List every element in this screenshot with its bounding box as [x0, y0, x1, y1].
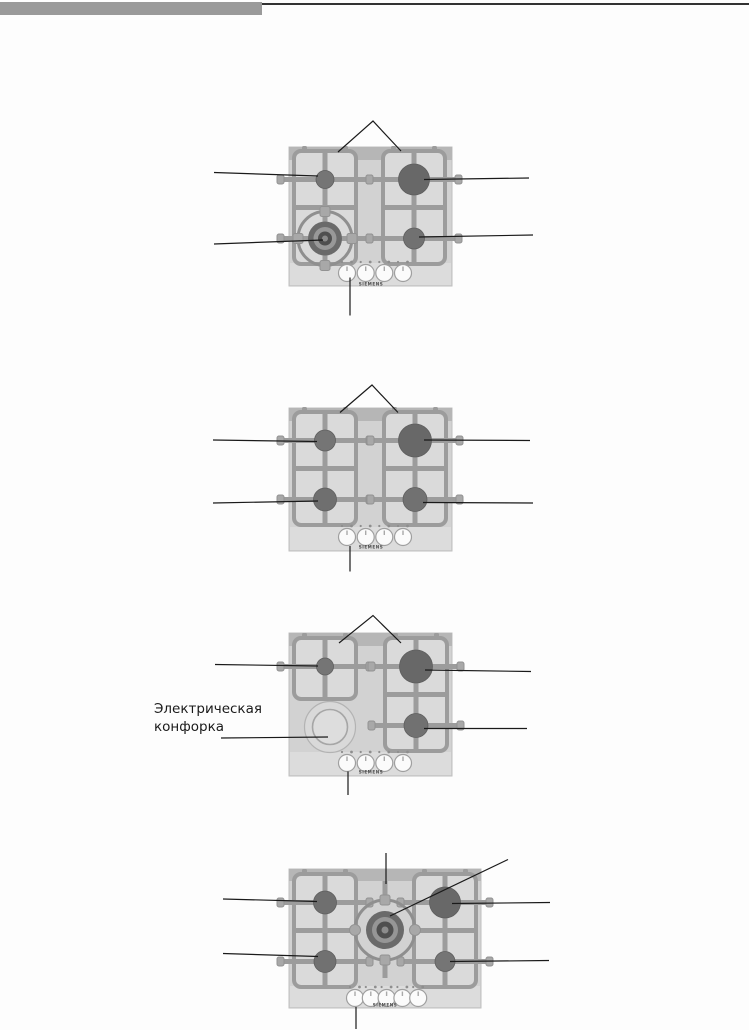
- front-right-burner: [403, 488, 427, 512]
- siemens-logo-text: SIEMENS: [359, 770, 383, 775]
- callout-front-right-burner: [423, 503, 533, 504]
- siemens-logo-text: SIEMENS: [359, 545, 383, 550]
- back-left-burner: [317, 658, 334, 675]
- back-right-burner: [400, 650, 433, 683]
- callout-back-right-burner: [424, 440, 530, 441]
- siemens-logo-text: SIEMENS: [373, 1003, 397, 1008]
- electric-plate: [305, 702, 356, 753]
- front-right-burner: [404, 228, 425, 249]
- manual-page: Электрическая конфорка: [0, 0, 749, 1030]
- hob-diagram-3: SIEMENS: [215, 616, 531, 796]
- hob-diagrams-artwork: SIEMENS SIEMENS: [0, 0, 749, 1030]
- siemens-logo-text: SIEMENS: [359, 282, 383, 287]
- hob-diagram-4: SIEMENS: [223, 853, 550, 1029]
- back-left-burner: [316, 171, 334, 189]
- back-right-burner: [430, 887, 461, 918]
- front-left-burner: [314, 488, 337, 511]
- back-left-burner: [315, 430, 336, 451]
- hob-diagram-1: SIEMENS: [214, 121, 533, 316]
- front-right-burner: [404, 714, 428, 738]
- hob-diagram-2: SIEMENS: [213, 385, 533, 572]
- back-left-burner: [314, 891, 337, 914]
- front-left-burner: [314, 951, 336, 973]
